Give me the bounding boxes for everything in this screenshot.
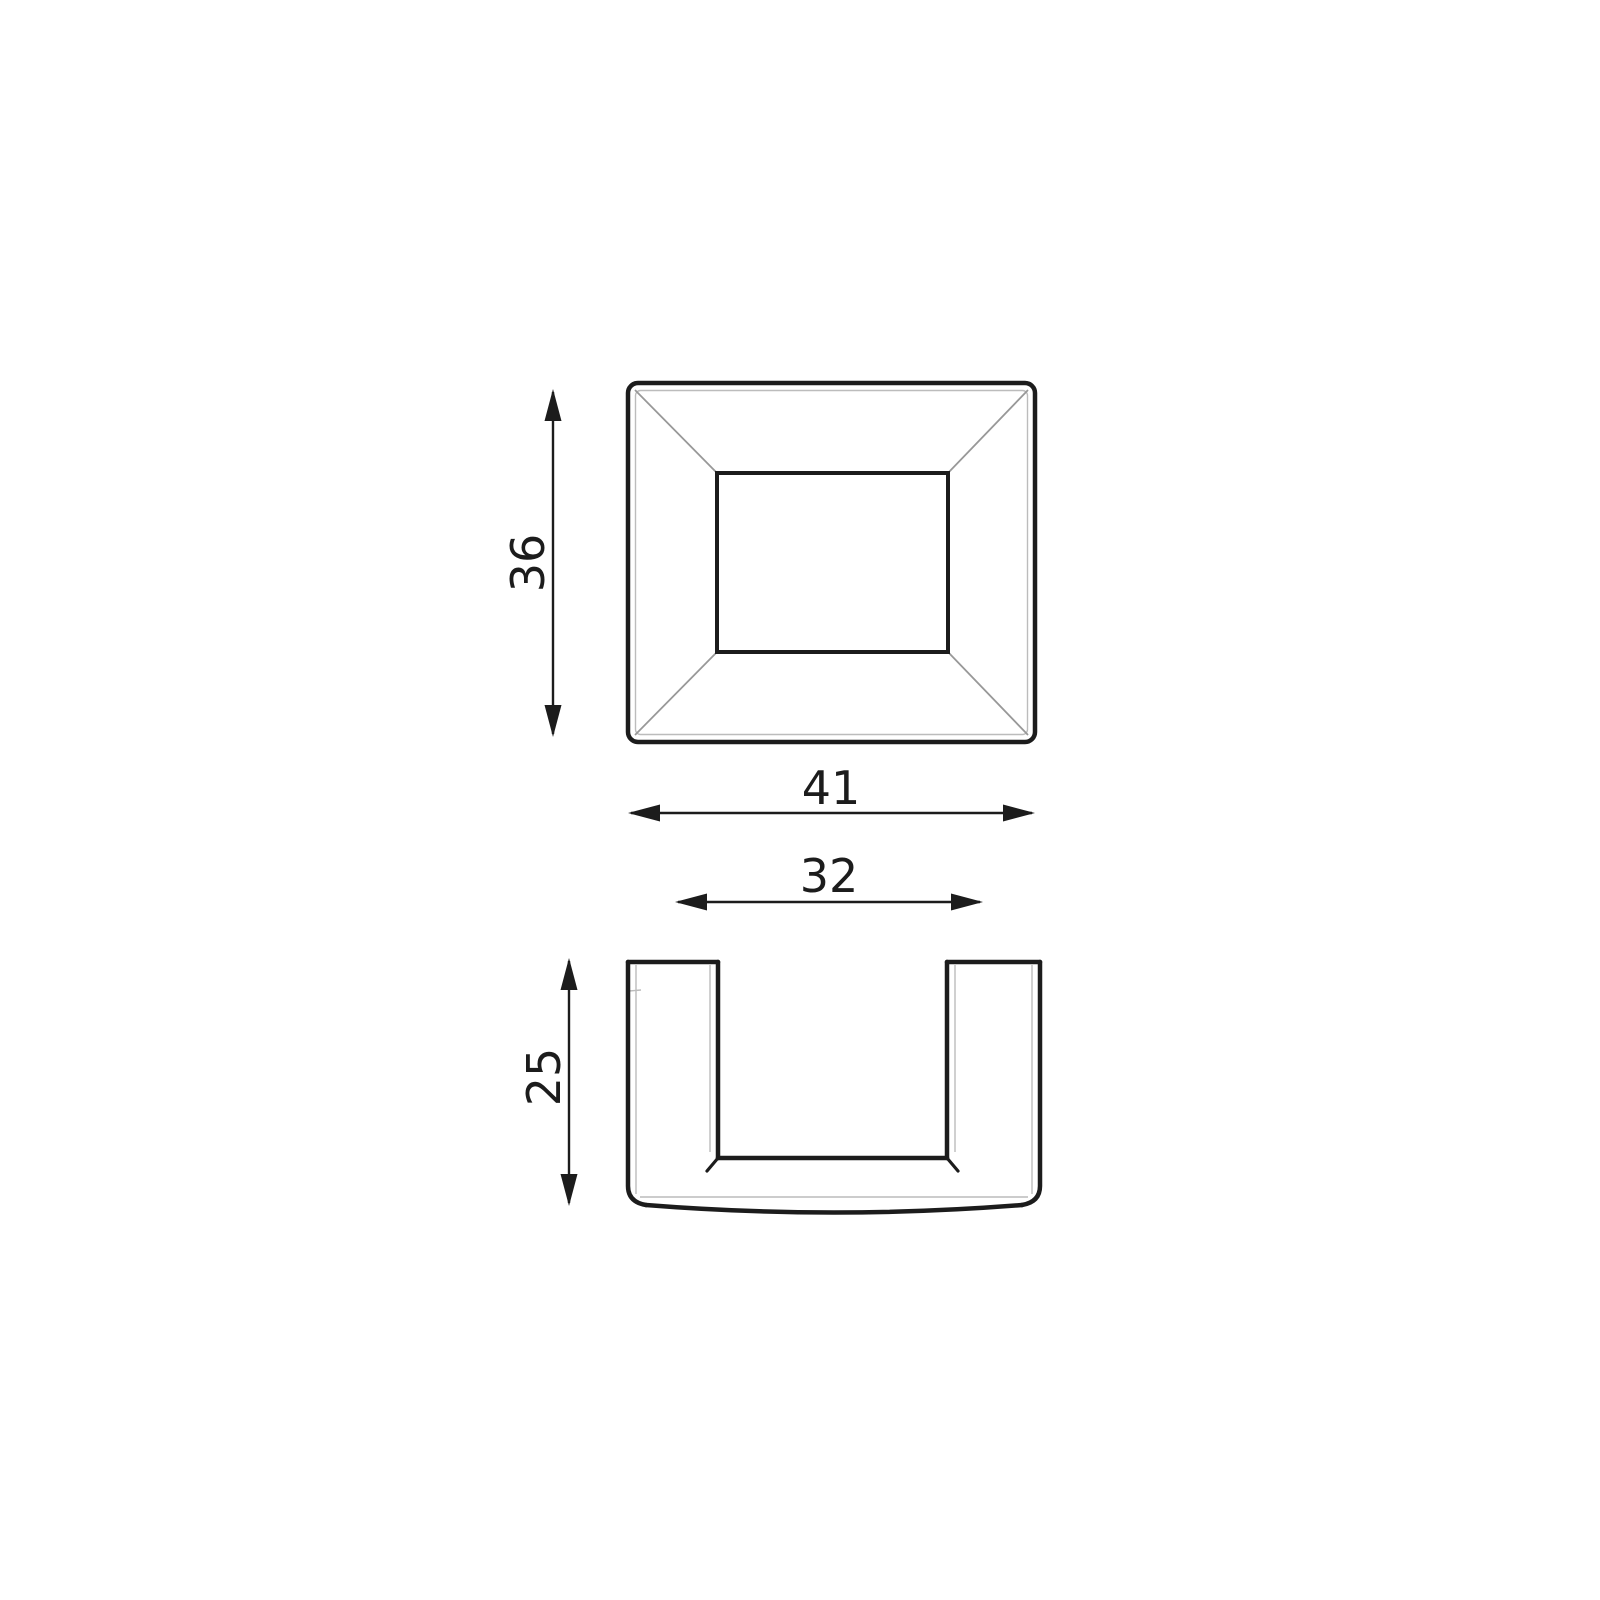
- front-view-bottom-edge: [646, 1205, 1022, 1213]
- top-view-diagonal-bottom-left: [635, 652, 717, 735]
- arrowhead-left-icon: [628, 805, 660, 822]
- technical-drawing: 36 41 32: [0, 0, 1600, 1600]
- dimension-label-height-front: 25: [517, 1048, 571, 1107]
- arrowhead-down-icon: [545, 705, 562, 737]
- dimension-front-view-height: 25: [517, 958, 578, 1206]
- arrowhead-right-icon: [951, 894, 983, 911]
- top-view-diagonal-top-right: [948, 390, 1028, 473]
- top-view-diagonal-bottom-right: [948, 652, 1028, 735]
- top-view-offset-edge: [636, 391, 1028, 735]
- front-view-chamfer-right: [947, 1158, 958, 1171]
- top-view-fillet-edges: [636, 391, 1028, 735]
- dimension-label-inner-width-front: 32: [800, 849, 859, 903]
- dimension-top-view-height: 36: [501, 389, 562, 737]
- arrowhead-up-icon: [561, 958, 578, 990]
- front-view-edge-tick: [629, 990, 641, 991]
- top-view-inner-opening: [717, 473, 948, 652]
- arrowhead-left-icon: [675, 894, 707, 911]
- top-view: [628, 383, 1035, 742]
- drawing-canvas: 36 41 32: [0, 0, 1600, 1600]
- arrowhead-up-icon: [545, 389, 562, 421]
- dimension-label-height-top: 36: [501, 534, 555, 593]
- dimension-top-view-width: 41: [628, 761, 1035, 822]
- front-view-right-outer-edge: [1022, 962, 1040, 1205]
- arrowhead-down-icon: [561, 1174, 578, 1206]
- front-view-fillet-edges: [629, 965, 1032, 1197]
- dimension-label-width-top: 41: [802, 761, 861, 815]
- top-view-corner-edges: [635, 390, 1028, 735]
- dimension-front-view-inner-width: 32: [675, 849, 983, 911]
- top-view-diagonal-top-left: [635, 390, 717, 473]
- front-view: [628, 962, 1040, 1213]
- top-view-outer-edge: [628, 383, 1035, 742]
- front-view-left-outer-edge: [628, 962, 646, 1205]
- arrowhead-right-icon: [1003, 805, 1035, 822]
- front-view-chamfer-left: [707, 1158, 718, 1171]
